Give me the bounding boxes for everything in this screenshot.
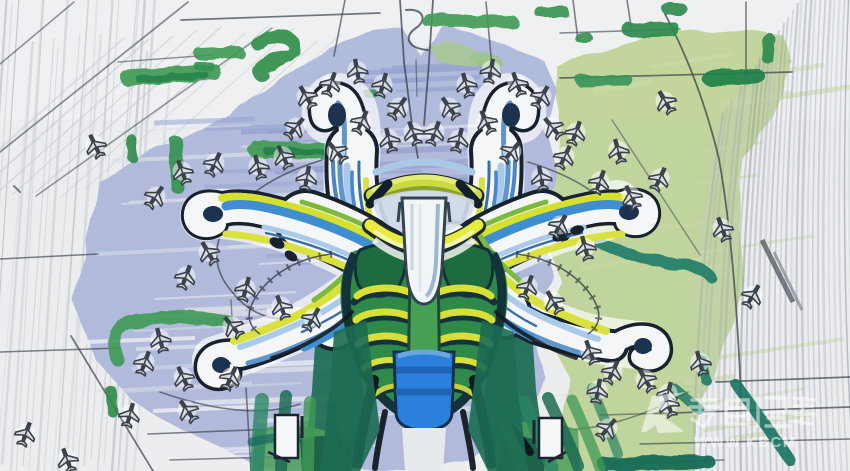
svg-text:WWW.KBCM: WWW.KBCM (694, 434, 797, 451)
